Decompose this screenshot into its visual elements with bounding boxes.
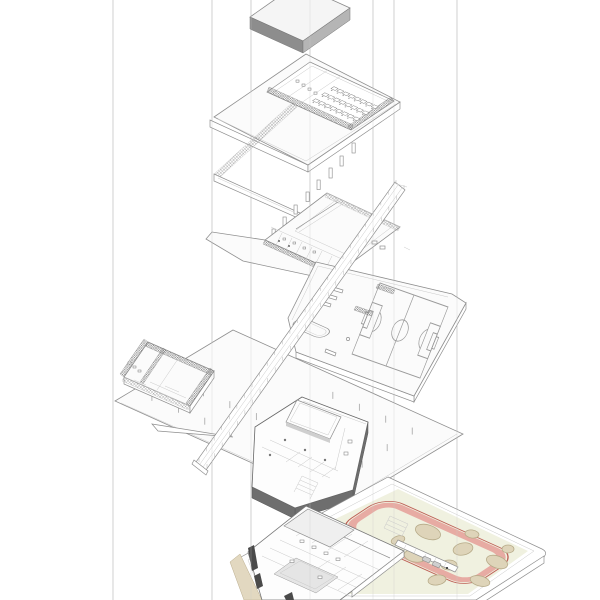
exploded-axonometric-diagram	[0, 0, 600, 600]
diagram-canvas	[0, 0, 600, 600]
